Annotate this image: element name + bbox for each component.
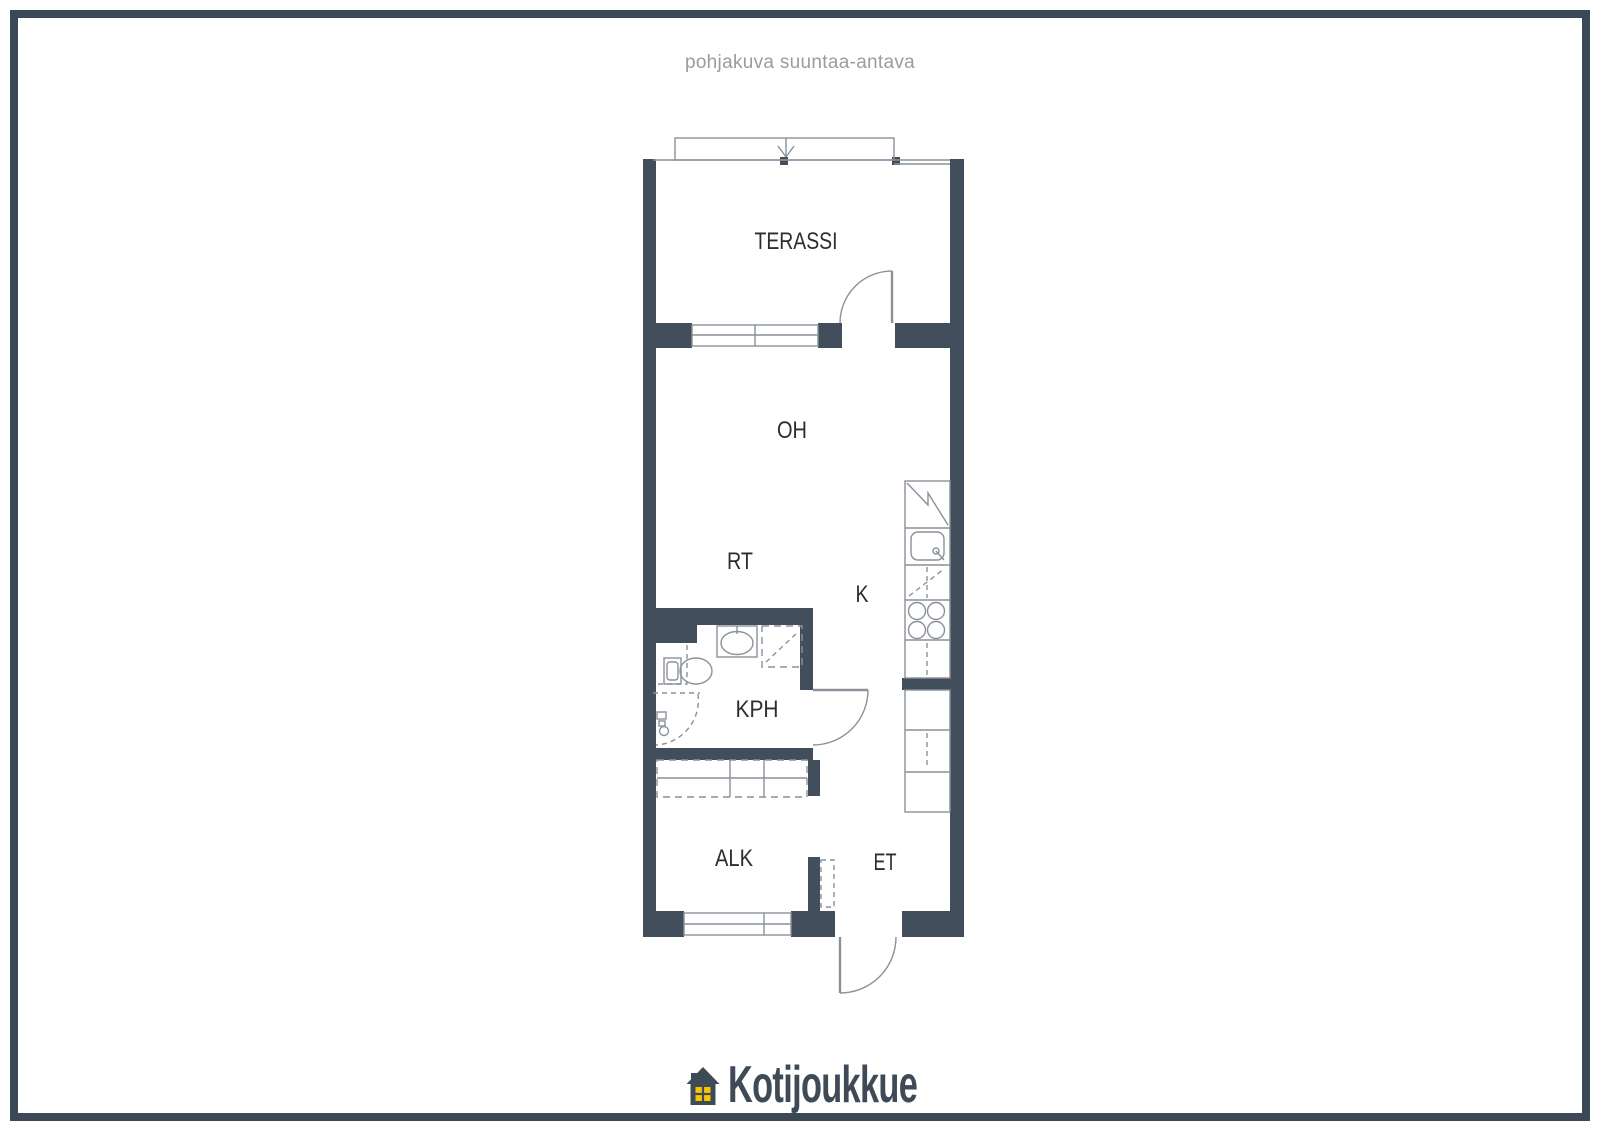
- fridge-icon: [907, 483, 948, 525]
- terrace-railing: [653, 138, 950, 164]
- floor-plan-page: pohjakuva suuntaa-antava: [0, 0, 1600, 1131]
- kitchen-counter: [905, 481, 950, 812]
- utility-cabinet-icon: [821, 860, 834, 907]
- stove-icon: [909, 603, 945, 639]
- shower-door-swing-icon: [653, 693, 700, 745]
- room-label-kph: KPH: [736, 696, 779, 723]
- room-label-terassi: TERASSI: [755, 228, 838, 255]
- shower-icon: [762, 626, 802, 667]
- alcove-window-icon: [684, 913, 791, 935]
- sink-icon: [911, 532, 944, 560]
- walls: [643, 157, 964, 937]
- room-label-oh: OH: [777, 417, 807, 444]
- terrace-door-icon: [840, 271, 892, 323]
- dishwasher-icon: [909, 567, 944, 598]
- room-label-et: ET: [874, 849, 897, 876]
- washbasin-icon: [717, 626, 757, 657]
- toilet-icon: [664, 658, 712, 684]
- room-label-rt: RT: [727, 548, 753, 575]
- room-label-k: K: [856, 581, 869, 608]
- floor-plan: TERASSI OH RT K KPH ALK ET: [0, 0, 1600, 1131]
- house-icon: [686, 1066, 720, 1106]
- living-room-window-icon: [692, 325, 818, 346]
- bathroom-door-icon: [813, 690, 868, 745]
- entrance-door-icon: [840, 937, 896, 993]
- brand-name: Kotijoukkue: [728, 1059, 917, 1111]
- direction-arrow-icon: [778, 138, 794, 157]
- room-label-alk: ALK: [715, 845, 753, 872]
- wardrobe-icon: [657, 760, 807, 797]
